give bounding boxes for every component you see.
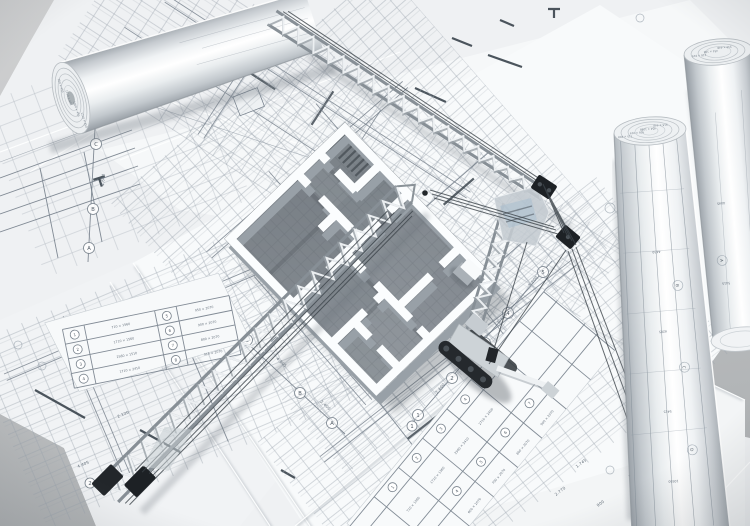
scene-canvas: C B A 4.640 1 2 2.400 6.445 4.430 1.540 — [0, 0, 750, 526]
blueprint-scene: C B A 4.640 1 2 2.400 6.445 4.430 1.540 — [0, 0, 750, 526]
vignette — [0, 0, 750, 526]
